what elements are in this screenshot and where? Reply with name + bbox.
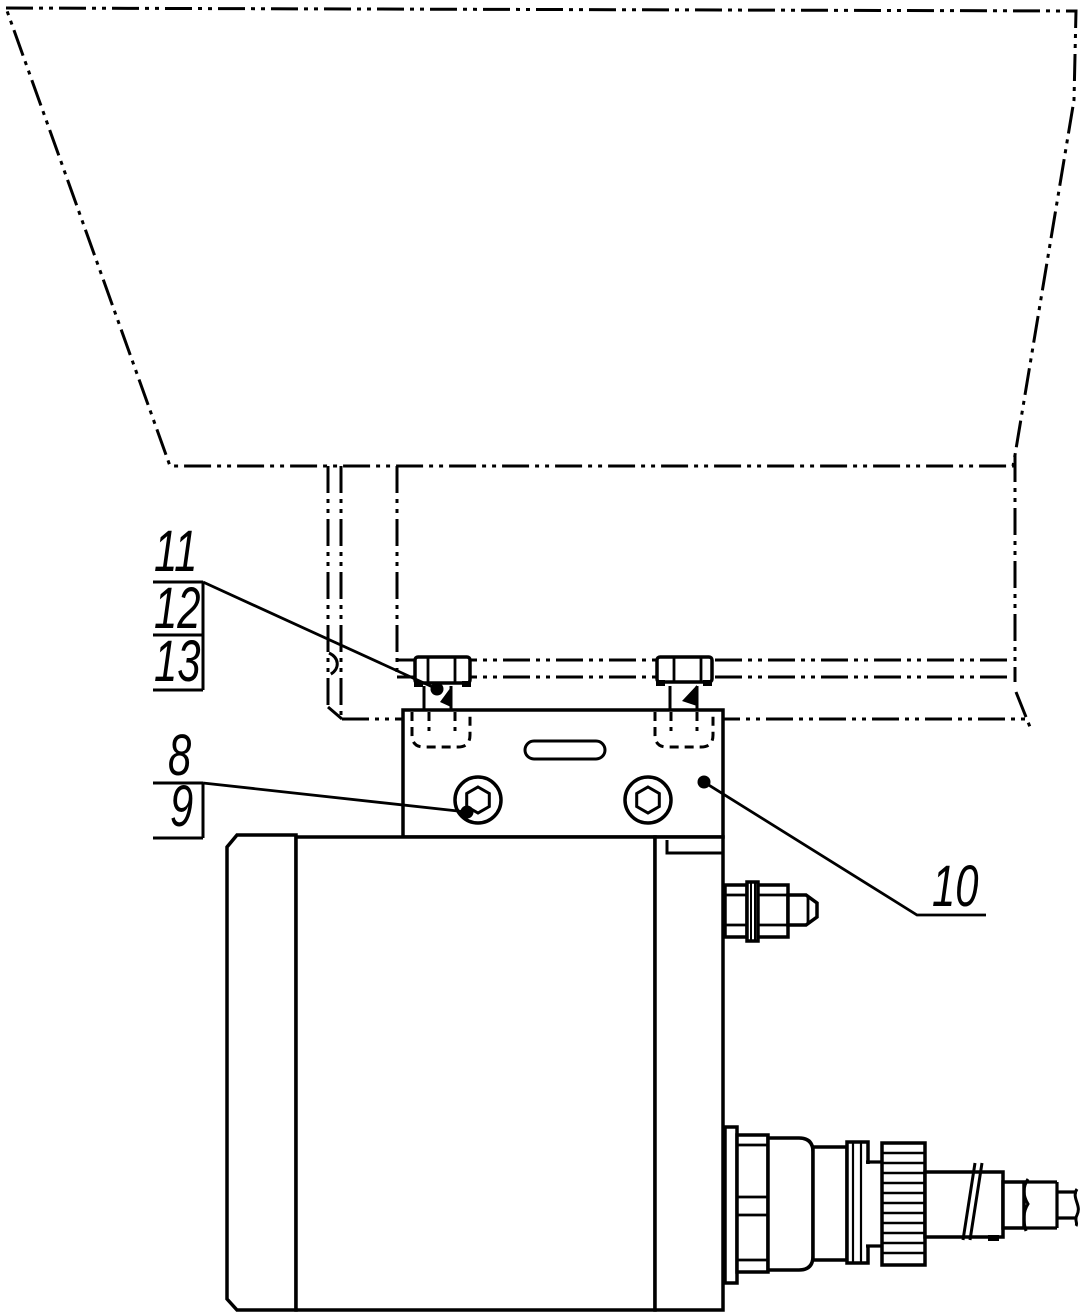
machine-bed-outline [6,8,1076,466]
connector-shell [768,1138,813,1270]
t-bolt-left-foot-b [462,681,471,687]
plug-body [758,885,788,937]
leader-10-dot [698,776,711,789]
cable-connector [725,1127,1078,1283]
connector-ring [847,1142,868,1263]
motor-main-body [296,837,655,1310]
t-bolt-right-foot-b [703,680,712,686]
motor-right-housing [655,837,723,1310]
leader-11-12-13 [203,582,437,689]
motor-end-cap [227,835,296,1310]
plug-base [725,885,747,937]
connector-collar [813,1147,847,1260]
leader-8-9-dot [461,806,474,819]
technical-drawing: 11 12 13 8 9 10 [0,0,1080,1313]
cable-barrel-latch [988,1235,999,1241]
connector-flange [725,1127,737,1283]
leader-11-12-13-dot [431,683,444,696]
t-bolt-left-head [415,657,470,683]
callout-label-11: 11 [154,523,197,581]
t-bolt-right-head [657,657,712,682]
callout-label-13: 13 [154,633,200,691]
motor-body-group [227,835,723,1310]
mounting-plate-slot [525,741,605,759]
plug-tip [788,895,817,925]
mounting-plate [403,710,723,837]
callout-label-10: 10 [932,858,978,916]
side-plug-connector [725,882,817,941]
rail-right-chamfer [1016,692,1030,727]
mounting-plate-body [403,710,723,837]
callout-label-9: 9 [170,778,193,836]
cable-step [1003,1182,1024,1228]
socket-screw-right-hex [637,787,660,813]
connector-nut [737,1135,768,1272]
t-bolt-right-wedge [682,685,697,706]
connector-neck [866,1164,882,1245]
column-hole-arc [329,653,337,675]
t-bolt-right-foot-a [656,680,665,686]
cable-tip-break [1075,1189,1078,1226]
